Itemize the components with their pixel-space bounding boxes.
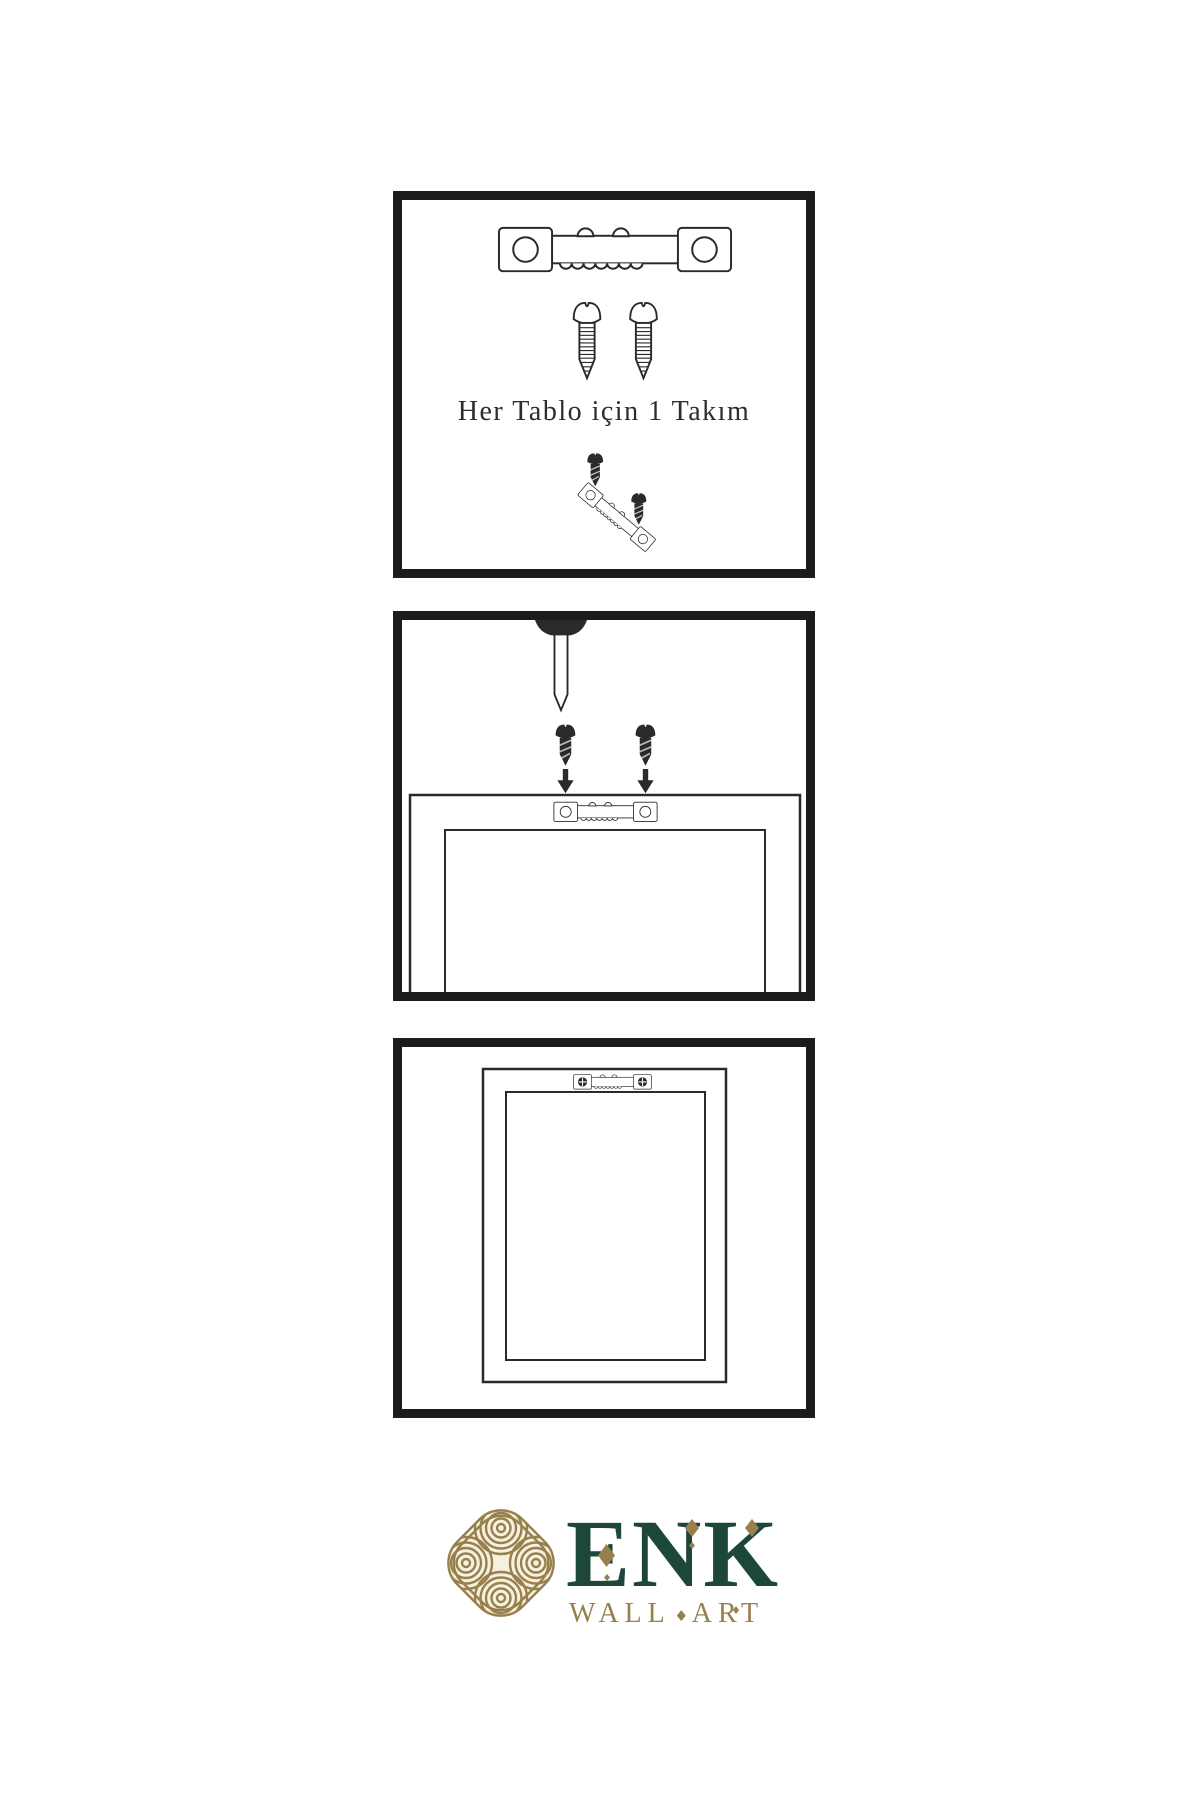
panel1-caption: Her Tablo için 1 Takım — [402, 396, 806, 428]
interlaced-knot-icon — [438, 1500, 564, 1626]
panel-mounting-step — [393, 611, 815, 1001]
dark-screw-icon — [556, 725, 576, 766]
tagline-word: ART — [692, 1598, 764, 1629]
dark-screw-icon — [631, 493, 646, 524]
frame-back-inner-outline — [506, 1092, 705, 1360]
sawtooth-hanger-icon — [499, 228, 731, 271]
dark-screw-icon — [636, 725, 656, 766]
diamond-separator-icon — [677, 1610, 686, 1621]
brand-tagline: WALLART — [569, 1598, 764, 1630]
brand-name: ENK — [566, 1506, 780, 1602]
screw-icon — [630, 303, 657, 378]
down-arrow-icon — [637, 769, 653, 793]
tagline-word: WALL — [569, 1598, 671, 1629]
hardware-illustration — [402, 200, 806, 569]
hung-frame-illustration — [402, 1047, 806, 1409]
panel-hardware-set: Her Tablo için 1 Takım — [393, 191, 815, 578]
dark-screw-icon — [587, 453, 603, 486]
tilted-sawtooth-hanger-icon — [578, 482, 656, 552]
brand-logo: ENK WALLART — [438, 1498, 810, 1660]
sawtooth-hanger-icon — [554, 802, 657, 821]
nail-in-wall-icon — [535, 620, 587, 710]
screw-icon — [574, 303, 601, 378]
down-arrow-icon — [557, 769, 573, 793]
panel-finished-step — [393, 1038, 815, 1418]
instruction-sheet: Her Tablo için 1 Takım — [0, 0, 1200, 1800]
frame-back-inner-outline — [445, 830, 765, 992]
mounting-illustration — [402, 620, 806, 992]
